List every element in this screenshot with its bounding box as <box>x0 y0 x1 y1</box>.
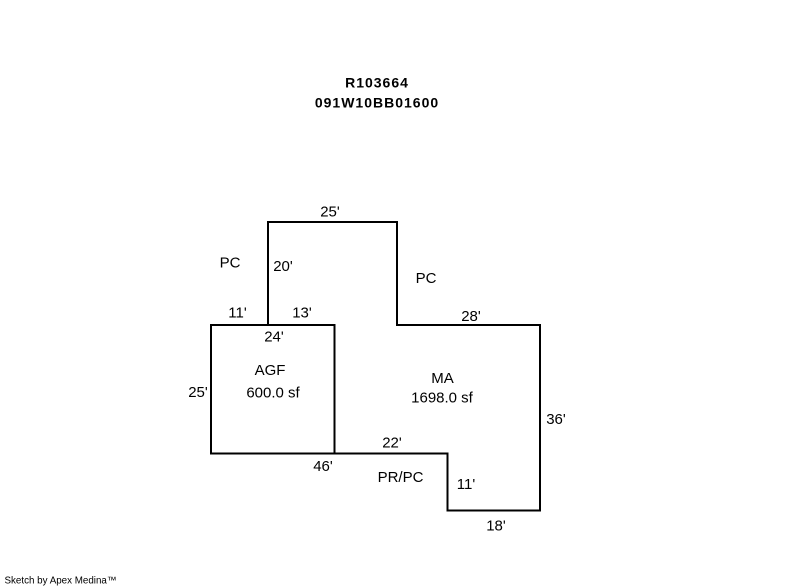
svg-text:25': 25' <box>320 204 340 221</box>
svg-text:R103664: R103664 <box>345 75 409 91</box>
svg-text:25': 25' <box>188 384 208 401</box>
svg-text:1698.0 sf: 1698.0 sf <box>411 390 474 407</box>
svg-text:13': 13' <box>292 305 312 322</box>
svg-text:Sketch by Apex Medina™: Sketch by Apex Medina™ <box>5 576 117 587</box>
svg-text:20': 20' <box>273 258 293 275</box>
svg-text:46': 46' <box>313 458 333 475</box>
svg-text:11': 11' <box>228 305 247 322</box>
svg-text:091W10BB01600: 091W10BB01600 <box>315 95 439 111</box>
svg-text:36': 36' <box>546 411 566 428</box>
svg-text:600.0 sf: 600.0 sf <box>246 385 300 402</box>
svg-text:AGF: AGF <box>255 362 286 379</box>
svg-text:PC: PC <box>416 270 437 287</box>
svg-text:18': 18' <box>486 518 506 535</box>
svg-text:28': 28' <box>461 308 481 325</box>
svg-text:PC: PC <box>220 255 241 272</box>
svg-text:MA: MA <box>431 370 454 387</box>
svg-text:22': 22' <box>382 435 402 452</box>
svg-text:24': 24' <box>264 329 284 346</box>
svg-text:11': 11' <box>457 476 476 493</box>
svg-text:PR/PC: PR/PC <box>378 469 424 486</box>
